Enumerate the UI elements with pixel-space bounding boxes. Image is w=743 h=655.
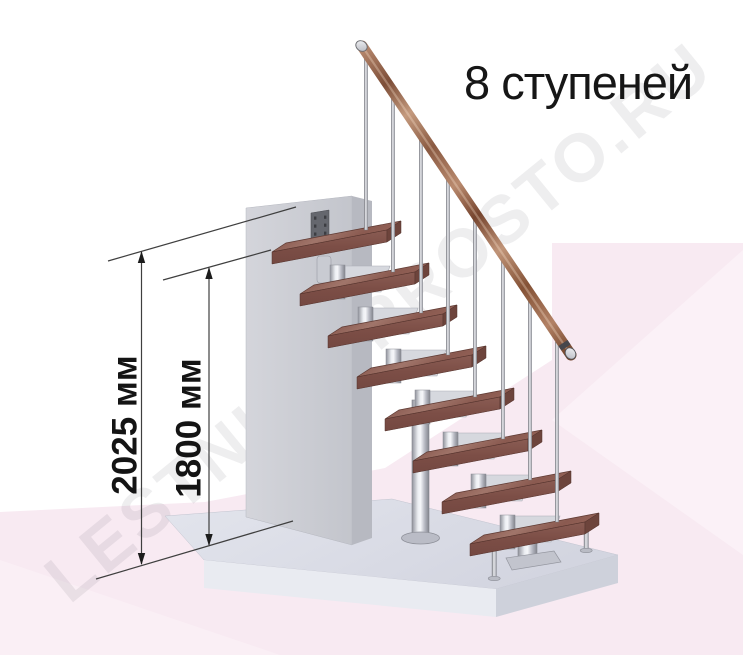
baluster <box>419 133 422 313</box>
front-leg <box>492 550 497 578</box>
dimension-label-total-height: 2025 мм <box>105 355 144 494</box>
central-support-flange <box>402 532 440 544</box>
baluster <box>364 50 367 230</box>
front-leg-foot <box>488 576 500 580</box>
scene-svg: LESTNICA-PROSTO.RU <box>0 0 743 655</box>
wall-bracket <box>317 256 331 283</box>
dimension-label-tread-height: 1800 мм <box>169 358 208 497</box>
baluster <box>555 342 558 522</box>
baluster <box>501 259 504 439</box>
baluster <box>446 175 449 355</box>
staircase-illustration: LESTNICA-PROSTO.RU <box>0 0 743 655</box>
baluster <box>473 217 476 397</box>
handrail-end-ring <box>563 343 566 348</box>
page-title: 8 ступеней <box>464 56 692 109</box>
baluster <box>391 92 394 272</box>
baluster <box>528 300 531 480</box>
right-leg-foot <box>580 548 592 552</box>
